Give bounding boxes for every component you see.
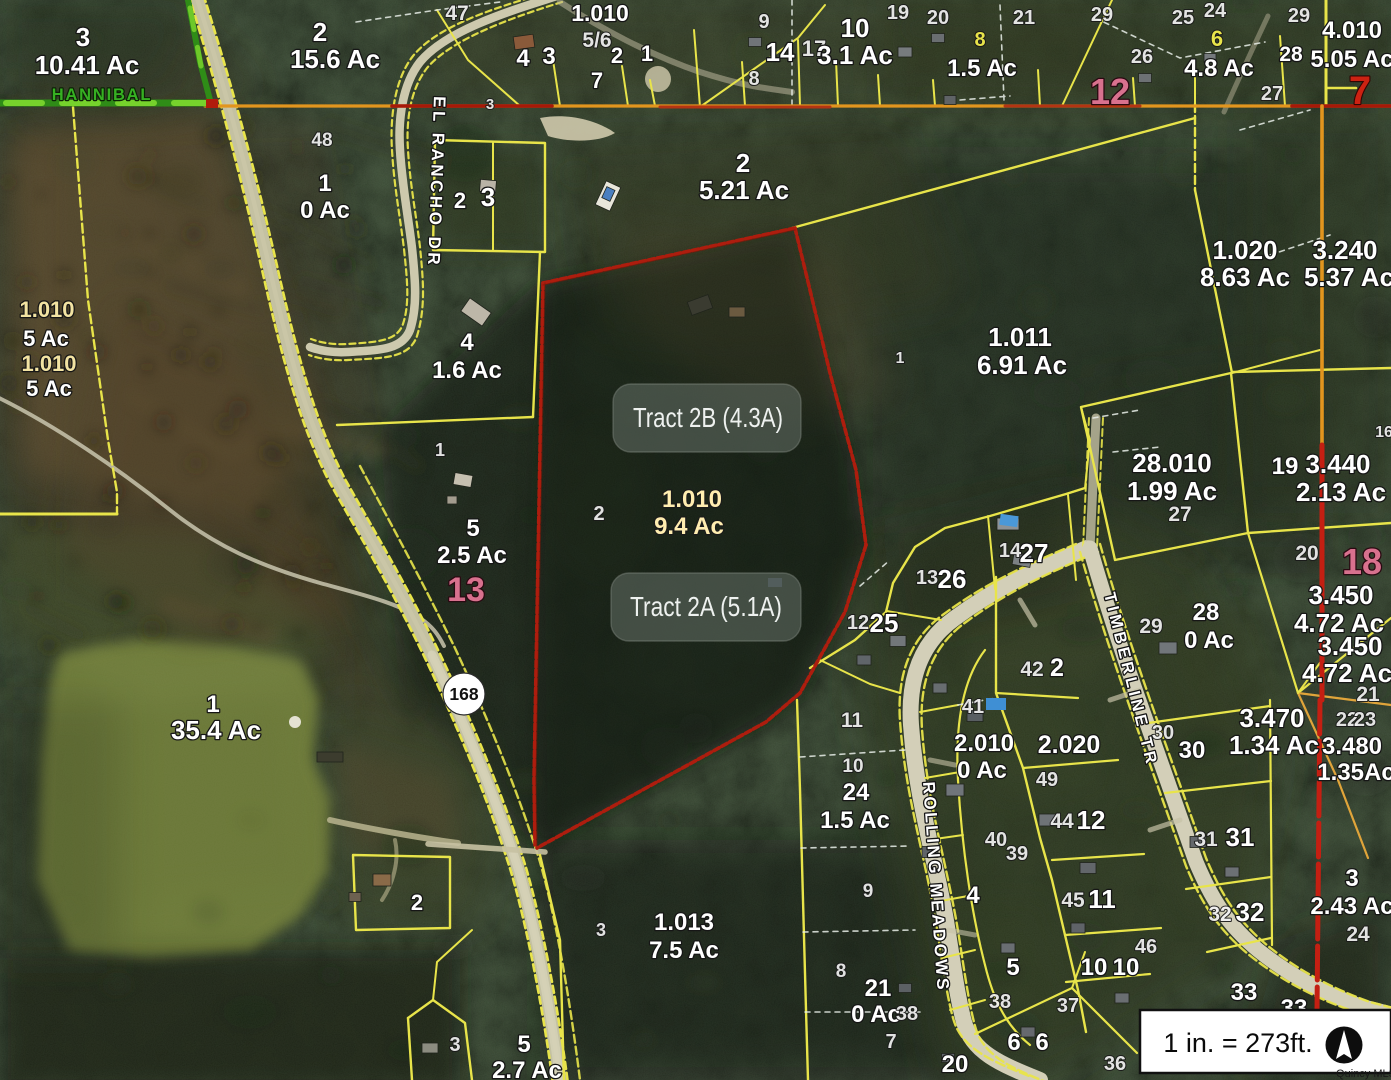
- svg-text:31: 31: [1226, 822, 1255, 852]
- svg-text:0 Ac: 0 Ac: [851, 1001, 901, 1028]
- svg-text:6: 6: [1035, 1029, 1048, 1056]
- svg-text:36: 36: [1104, 1053, 1126, 1075]
- svg-text:21: 21: [1356, 683, 1380, 706]
- svg-text:40: 40: [985, 829, 1007, 851]
- svg-text:10: 10: [841, 13, 870, 43]
- svg-text:Quincy MLS: Quincy MLS: [1336, 1068, 1391, 1080]
- svg-text:12: 12: [1090, 71, 1130, 112]
- svg-text:15.6 Ac: 15.6 Ac: [290, 44, 380, 74]
- svg-text:12: 12: [847, 612, 869, 634]
- svg-text:5/6: 5/6: [582, 29, 611, 52]
- svg-text:29: 29: [1139, 615, 1162, 638]
- svg-text:4.8 Ac: 4.8 Ac: [1184, 55, 1254, 82]
- svg-text:HANNIBAL: HANNIBAL: [52, 86, 153, 104]
- svg-text:1 in. = 273ft.: 1 in. = 273ft.: [1163, 1028, 1312, 1058]
- svg-text:6.91 Ac: 6.91 Ac: [977, 350, 1067, 380]
- svg-text:14: 14: [999, 540, 1022, 562]
- svg-text:1.010: 1.010: [571, 0, 629, 26]
- svg-text:9.4 Ac: 9.4 Ac: [654, 513, 724, 540]
- svg-text:44: 44: [1050, 810, 1074, 833]
- svg-text:29: 29: [1091, 4, 1113, 26]
- svg-text:13: 13: [447, 571, 485, 609]
- svg-text:1.5 Ac: 1.5 Ac: [947, 55, 1017, 82]
- svg-text:12: 12: [1077, 805, 1106, 835]
- svg-text:2: 2: [611, 43, 623, 68]
- svg-text:8.63 Ac: 8.63 Ac: [1200, 262, 1290, 292]
- svg-text:26: 26: [1131, 46, 1153, 68]
- svg-text:38: 38: [989, 991, 1011, 1013]
- svg-text:5 Ac: 5 Ac: [26, 376, 72, 401]
- svg-text:2: 2: [736, 148, 750, 178]
- svg-text:11: 11: [1088, 884, 1116, 914]
- svg-text:26: 26: [938, 564, 967, 594]
- svg-text:1.6 Ac: 1.6 Ac: [432, 357, 502, 384]
- svg-text:2.43 Ac: 2.43 Ac: [1310, 893, 1391, 920]
- svg-text:4: 4: [966, 882, 980, 909]
- svg-text:7: 7: [885, 1031, 896, 1053]
- svg-text:35.4 Ac: 35.4 Ac: [171, 715, 261, 745]
- svg-text:1.010: 1.010: [662, 486, 722, 513]
- svg-text:2: 2: [411, 890, 423, 915]
- svg-text:20: 20: [1295, 542, 1318, 565]
- svg-text:1.011: 1.011: [988, 322, 1052, 352]
- svg-text:5.21 Ac: 5.21 Ac: [699, 175, 789, 205]
- svg-text:3: 3: [449, 1034, 460, 1056]
- svg-text:1.013: 1.013: [654, 909, 714, 936]
- svg-text:37: 37: [1057, 995, 1079, 1017]
- svg-text:49: 49: [1036, 769, 1058, 791]
- svg-text:9: 9: [758, 11, 769, 33]
- svg-text:41: 41: [962, 696, 984, 718]
- svg-text:39: 39: [1006, 843, 1028, 865]
- svg-text:1.99 Ac: 1.99 Ac: [1127, 476, 1217, 506]
- svg-text:8: 8: [974, 29, 985, 51]
- svg-text:1.5 Ac: 1.5 Ac: [820, 807, 890, 834]
- svg-text:2.010: 2.010: [954, 730, 1014, 757]
- svg-text:10.41 Ac: 10.41 Ac: [35, 50, 140, 80]
- svg-text:31: 31: [1194, 828, 1218, 851]
- svg-text:32: 32: [1236, 897, 1265, 927]
- svg-text:5 Ac: 5 Ac: [23, 326, 69, 351]
- svg-text:21: 21: [1013, 7, 1035, 29]
- svg-text:8: 8: [748, 68, 759, 90]
- svg-text:1: 1: [435, 440, 445, 460]
- svg-text:13: 13: [916, 567, 938, 589]
- svg-text:3: 3: [1345, 865, 1358, 892]
- svg-text:5: 5: [517, 1031, 530, 1058]
- svg-text:Tract 2B (4.3A): Tract 2B (4.3A): [633, 402, 783, 433]
- svg-text:0 Ac: 0 Ac: [300, 197, 350, 224]
- svg-text:1: 1: [641, 41, 653, 66]
- svg-text:32: 32: [1208, 903, 1231, 926]
- svg-text:8: 8: [836, 961, 847, 982]
- svg-text:42: 42: [1020, 658, 1043, 681]
- svg-text:2.5 Ac: 2.5 Ac: [437, 542, 507, 569]
- svg-text:16: 16: [1375, 424, 1391, 441]
- svg-text:5.37 Ac: 5.37 Ac: [1304, 262, 1391, 292]
- svg-text:11: 11: [841, 709, 864, 732]
- svg-text:0 Ac: 0 Ac: [1184, 627, 1234, 654]
- svg-text:168: 168: [449, 684, 478, 704]
- svg-text:14: 14: [766, 37, 795, 67]
- svg-text:5: 5: [1006, 954, 1019, 981]
- svg-text:27: 27: [1020, 538, 1049, 568]
- svg-text:4.010: 4.010: [1322, 17, 1382, 44]
- svg-text:3.1 Ac: 3.1 Ac: [817, 40, 893, 70]
- svg-text:4: 4: [460, 329, 474, 356]
- svg-text:10: 10: [842, 756, 863, 777]
- svg-text:19: 19: [1272, 453, 1299, 480]
- svg-text:2.13 Ac: 2.13 Ac: [1296, 477, 1386, 507]
- svg-text:1.34 Ac: 1.34 Ac: [1229, 730, 1319, 760]
- svg-text:3.240: 3.240: [1312, 235, 1377, 265]
- svg-text:33: 33: [1231, 979, 1258, 1006]
- svg-text:1.010: 1.010: [19, 297, 74, 322]
- svg-text:9: 9: [863, 881, 874, 902]
- svg-text:47: 47: [445, 2, 468, 25]
- svg-text:7.5 Ac: 7.5 Ac: [649, 937, 719, 964]
- svg-text:20: 20: [942, 1051, 969, 1078]
- svg-text:23: 23: [1354, 709, 1376, 731]
- svg-text:6: 6: [1007, 1029, 1020, 1056]
- svg-text:27: 27: [1261, 83, 1283, 105]
- svg-text:1.020: 1.020: [1212, 235, 1277, 265]
- svg-text:18: 18: [1342, 541, 1382, 582]
- svg-text:1: 1: [206, 691, 219, 718]
- svg-text:3.450: 3.450: [1308, 580, 1373, 610]
- svg-text:7: 7: [591, 68, 603, 93]
- svg-text:24: 24: [1346, 923, 1370, 946]
- svg-text:28.010: 28.010: [1132, 448, 1212, 478]
- svg-text:3: 3: [486, 96, 494, 113]
- svg-text:1.35Ac: 1.35Ac: [1317, 759, 1391, 786]
- svg-text:28: 28: [1279, 43, 1303, 66]
- svg-text:45: 45: [1061, 889, 1085, 912]
- svg-text:21: 21: [865, 975, 892, 1002]
- svg-text:3.480: 3.480: [1322, 733, 1382, 760]
- svg-text:10: 10: [1081, 954, 1108, 981]
- svg-text:2: 2: [313, 17, 327, 47]
- svg-text:5: 5: [466, 515, 479, 542]
- svg-text:2: 2: [454, 188, 466, 213]
- svg-text:6: 6: [1211, 26, 1223, 51]
- svg-text:30: 30: [1179, 737, 1206, 764]
- svg-text:1: 1: [318, 170, 331, 197]
- svg-text:25: 25: [1172, 7, 1194, 29]
- svg-text:0 Ac: 0 Ac: [957, 757, 1007, 784]
- svg-text:28: 28: [1193, 599, 1220, 626]
- svg-text:19: 19: [887, 2, 909, 24]
- svg-text:3: 3: [481, 182, 495, 212]
- svg-text:48: 48: [311, 130, 332, 151]
- svg-text:1: 1: [896, 350, 905, 367]
- svg-text:20: 20: [927, 7, 949, 29]
- svg-text:2.7 Ac: 2.7 Ac: [492, 1057, 562, 1080]
- svg-text:1.010: 1.010: [21, 351, 76, 376]
- svg-text:3: 3: [76, 22, 90, 52]
- svg-text:2: 2: [1050, 654, 1064, 682]
- svg-text:38: 38: [896, 1003, 918, 1025]
- svg-text:2.020: 2.020: [1038, 731, 1101, 759]
- svg-text:2: 2: [593, 503, 604, 525]
- svg-text:3: 3: [542, 43, 555, 70]
- svg-text:24: 24: [843, 779, 870, 806]
- svg-text:10: 10: [1113, 954, 1140, 981]
- svg-text:3.450: 3.450: [1317, 631, 1382, 661]
- svg-text:29: 29: [1288, 5, 1310, 27]
- svg-text:3: 3: [596, 920, 606, 940]
- svg-text:4: 4: [516, 45, 530, 72]
- svg-text:3.440: 3.440: [1305, 449, 1370, 479]
- svg-text:Tract 2A (5.1A): Tract 2A (5.1A): [630, 591, 782, 622]
- svg-text:25: 25: [870, 608, 899, 638]
- svg-text:27: 27: [1168, 503, 1191, 526]
- svg-text:24: 24: [1204, 0, 1227, 22]
- svg-text:7: 7: [1349, 69, 1371, 113]
- svg-text:3.470: 3.470: [1239, 703, 1304, 733]
